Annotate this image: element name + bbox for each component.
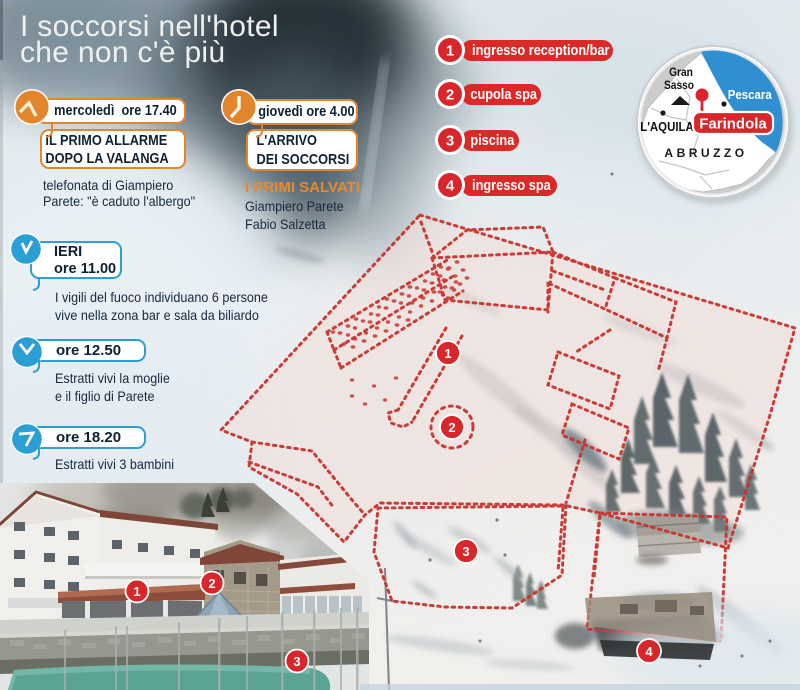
svg-text:L'AQUILA: L'AQUILA [640, 119, 694, 134]
svg-text:Gran: Gran [669, 66, 693, 79]
svg-text:Pescara: Pescara [728, 88, 772, 103]
svg-text:4: 4 [446, 178, 455, 195]
svg-text:3: 3 [446, 133, 454, 150]
svg-text:Farindola: Farindola [699, 116, 767, 133]
svg-text:ABRUZZO: ABRUZZO [664, 146, 747, 160]
svg-text:2: 2 [446, 87, 454, 104]
svg-text:1: 1 [446, 43, 454, 60]
svg-text:Sasso: Sasso [664, 79, 694, 92]
